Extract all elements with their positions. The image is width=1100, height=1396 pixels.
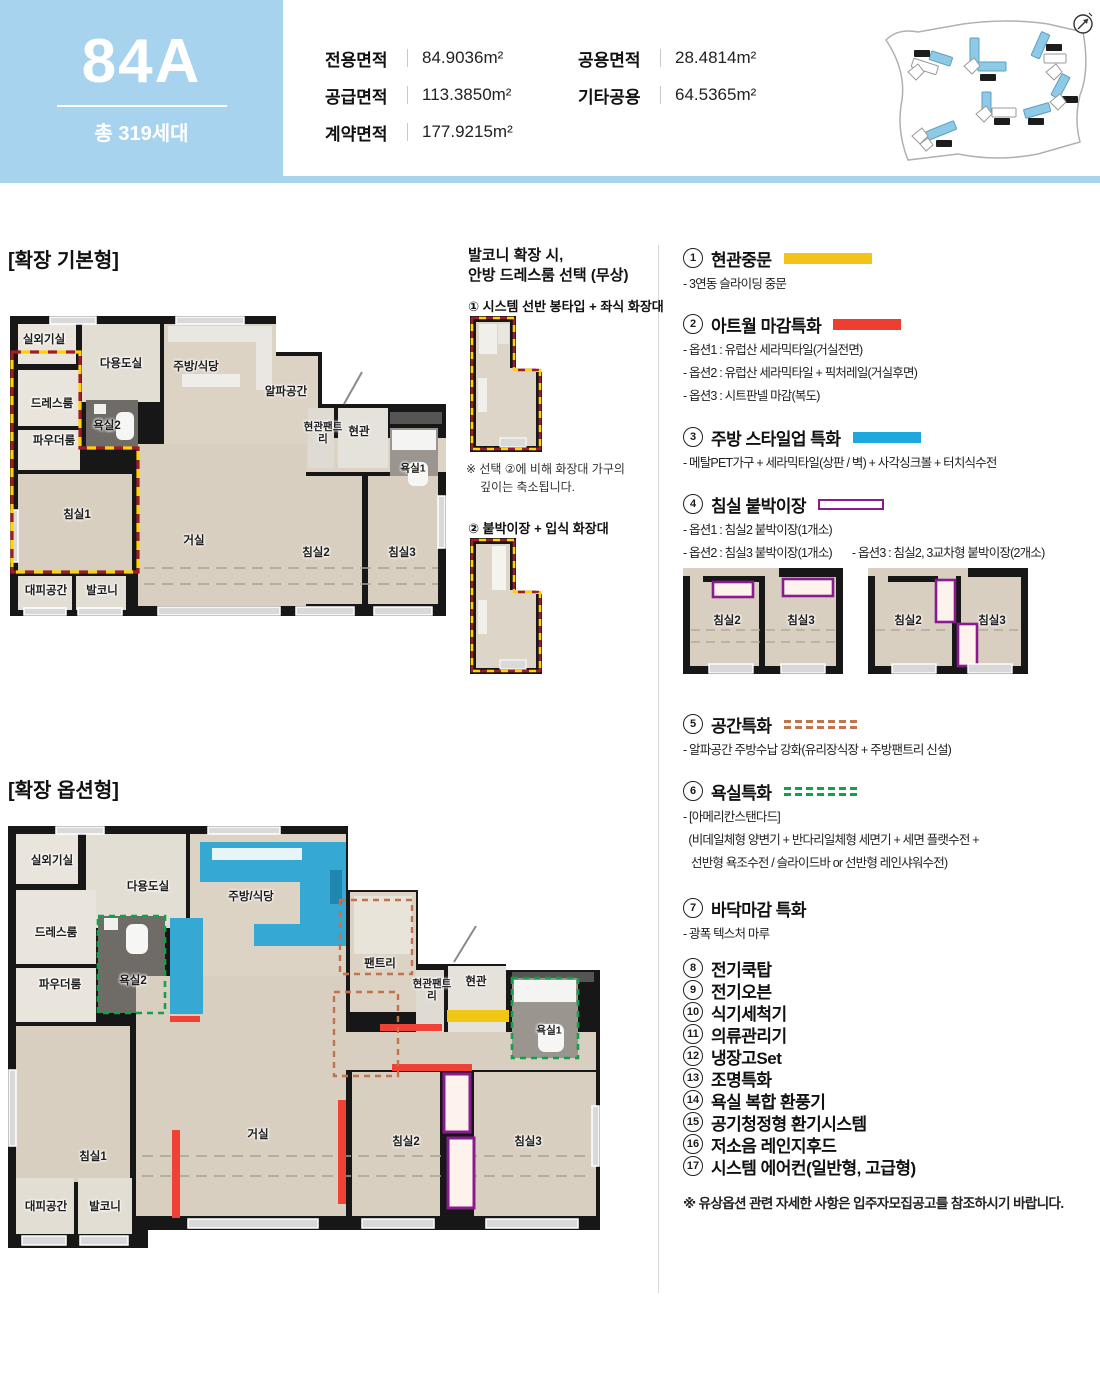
room-label: 주방/식당 — [173, 358, 219, 374]
room-label: 팬트리 — [364, 955, 396, 971]
room-label: 침실2 — [894, 612, 922, 628]
area-label: 기타공용 — [578, 83, 656, 108]
room-label: 거실 — [247, 1126, 268, 1142]
area-row: 공용면적 28.4814m² — [578, 47, 756, 69]
feature-item-head: 9전기오븐 — [683, 978, 772, 1002]
dressroom-choice-title-line2: 안방 드레스룸 선택 (무상) — [468, 266, 629, 286]
area-value: 64.5365m² — [675, 85, 756, 105]
feature-item-5: 5공간특화- 알파공간 주방수납 강화(유리장식장 + 주방팬트리 신설) — [683, 712, 951, 762]
legend-swatch-purple-outline — [818, 499, 884, 510]
feature-title: 바닥마감 특화 — [711, 896, 806, 921]
wardrobe-diagram-option3: 침실2 침실3 — [868, 568, 1028, 674]
area-row: 전용면적 84.9036m² — [325, 47, 503, 69]
feature-detail-text: - 옵션2 : 유럽산 세라믹타일 + 픽처레일(거실후면) — [683, 362, 917, 385]
feature-detail-text: - 옵션1 : 유럽산 세라믹타일(거실전면) — [683, 339, 862, 362]
room-label: 욕실1 — [400, 461, 425, 476]
room-label: 발코니 — [89, 1198, 121, 1214]
feature-detail-row: - 옵션1 : 침실2 붙박이장(1개소) — [683, 519, 1044, 542]
feature-item-head: 5공간특화 — [683, 712, 951, 736]
floor-plan-option-graphic — [8, 826, 600, 1248]
feature-item-head: 10식기세척기 — [683, 1000, 787, 1024]
feature-detail-row: - 3연동 슬라이딩 중문 — [683, 273, 872, 296]
feature-title: 침실 붙박이장 — [711, 492, 806, 517]
dressroom-note: ※ 선택 ②에 비해 화장대 가구의 깊이는 축소됩니다. — [466, 460, 625, 496]
dressroom-choice-title-line1: 발코니 확장 시, — [468, 246, 629, 266]
feature-number-badge: 11 — [683, 1024, 703, 1044]
room-label: 파우더룸 — [39, 976, 81, 992]
room-label: 욕실1 — [536, 1023, 561, 1038]
feature-detail-row: - 광폭 텍스처 마루 — [683, 923, 806, 946]
feature-item-head: 3주방 스타일업 특화 — [683, 425, 997, 449]
legend-swatch-yellow — [784, 253, 872, 264]
total-units: 총 319세대 — [94, 117, 188, 146]
area-value: 177.9215m² — [422, 122, 513, 142]
feature-item-head: 4침실 붙박이장 — [683, 492, 1044, 516]
unit-type-box: 84A 총 319세대 — [0, 0, 283, 176]
feature-item-1: 1현관중문- 3연동 슬라이딩 중문 — [683, 246, 872, 296]
floor-plan-option: 실외기실 다용도실 주방/식당 팬트리 드레스룸 욕실2 파우더룸 현관팬트리 … — [8, 826, 600, 1248]
area-row: 기타공용 64.5365m² — [578, 84, 756, 106]
plan-option-title: [확장 옵션형] — [8, 774, 119, 803]
room-label: 현관 — [465, 973, 486, 989]
area-label: 전용면적 — [325, 46, 403, 71]
room-label: 다용도실 — [127, 878, 169, 894]
feature-item-7: 7바닥마감 특화- 광폭 텍스처 마루 — [683, 896, 806, 946]
room-label: 침실2 — [392, 1133, 420, 1149]
room-label: 대피공간 — [25, 582, 67, 598]
feature-number-badge: 3 — [683, 427, 703, 447]
feature-number-badge: 9 — [683, 980, 703, 1000]
feature-detail-row: - 옵션2 : 침실3 붙박이장(1개소)- 옵션3 : 침실2, 3교차형 붙… — [683, 542, 1044, 565]
feature-detail-row: 선반형 욕조수전 / 슬라이드바 or 선반형 레인샤워수전) — [683, 852, 979, 875]
feature-number-badge: 1 — [683, 248, 703, 268]
header-divider-strip — [0, 176, 1100, 183]
feature-detail-text: - 알파공간 주방수납 강화(유리장식장 + 주방팬트리 신설) — [683, 739, 951, 762]
feature-title: 시스템 에어컨(일반형, 고급형) — [711, 1154, 916, 1179]
room-label: 파우더룸 — [33, 432, 75, 448]
feature-detail-row: - 옵션2 : 유럽산 세라믹타일 + 픽처레일(거실후면) — [683, 362, 917, 385]
room-label: 침실1 — [79, 1148, 107, 1164]
room-label: 드레스룸 — [31, 395, 73, 411]
area-label: 공용면적 — [578, 46, 656, 71]
feature-item-head: 16저소음 레인지후드 — [683, 1132, 836, 1156]
feature-detail-text: - 옵션3 : 침실2, 3교차형 붙박이장(2개소) — [852, 542, 1045, 565]
divider — [660, 86, 661, 104]
area-value: 28.4814m² — [675, 48, 756, 68]
room-label: 침실3 — [514, 1133, 542, 1149]
room-label: 실외기실 — [31, 852, 73, 868]
legend-swatch-green-dash — [784, 787, 858, 796]
room-label: 대피공간 — [25, 1198, 67, 1214]
entrance-door-highlight — [447, 1010, 509, 1022]
feature-number-badge: 5 — [683, 714, 703, 734]
room-label: 드레스룸 — [35, 924, 77, 940]
area-label: 공급면적 — [325, 83, 403, 108]
compass-icon — [1074, 13, 1092, 33]
feature-item-head: 2아트월 마감특화 — [683, 312, 917, 336]
feature-item-head: 11의류관리기 — [683, 1022, 787, 1046]
feature-detail-row: - 옵션1 : 유럽산 세라믹타일(거실전면) — [683, 339, 917, 362]
room-label: 현관팬트리 — [411, 978, 453, 1002]
room-label: 다용도실 — [100, 355, 142, 371]
area-value: 84.9036m² — [422, 48, 503, 68]
feature-detail-text: - 옵션1 : 침실2 붙박이장(1개소) — [683, 519, 832, 542]
feature-number-badge: 14 — [683, 1090, 703, 1110]
feature-item-17: 17시스템 에어컨(일반형, 고급형) — [683, 1154, 916, 1181]
feature-title: 현관중문 — [711, 246, 772, 271]
room-label: 현관 — [348, 423, 369, 439]
room-label: 실외기실 — [23, 331, 65, 347]
room-label: 욕실2 — [93, 417, 121, 433]
feature-detail-text: (비데일체형 양변기 + 반다리일체형 세면기 + 세면 플랫수전 + — [683, 829, 979, 852]
page: 84A 총 319세대 전용면적 84.9036m² 공급면적 113.3850… — [0, 0, 1100, 1396]
area-label: 계약면적 — [325, 120, 403, 145]
feature-detail-row: (비데일체형 양변기 + 반다리일체형 세면기 + 세면 플랫수전 + — [683, 829, 979, 852]
feature-detail-text: - 광폭 텍스처 마루 — [683, 923, 769, 946]
room-label: 침실3 — [978, 612, 1006, 628]
feature-item-head: 14욕실 복합 환풍기 — [683, 1088, 825, 1112]
feature-title: 공간특화 — [711, 712, 772, 737]
room-label: 발코니 — [86, 582, 118, 598]
room-label: 침실1 — [63, 506, 91, 522]
feature-title: 욕실특화 — [711, 779, 772, 804]
feature-detail-row: - [아메리칸스탠다드] — [683, 806, 979, 829]
feature-number-badge: 7 — [683, 898, 703, 918]
feature-number-badge: 8 — [683, 958, 703, 978]
feature-item-3: 3주방 스타일업 특화- 메탈PET가구 + 세라믹타일(상판 / 벽) + 사… — [683, 425, 997, 475]
feature-item-head: 6욕실특화 — [683, 779, 979, 803]
area-row: 계약면적 177.9215m² — [325, 121, 513, 143]
legend-swatch-blue — [853, 432, 921, 443]
feature-number-badge: 17 — [683, 1156, 703, 1176]
area-value: 113.3850m² — [422, 85, 511, 105]
feature-number-badge: 15 — [683, 1112, 703, 1132]
site-map — [878, 10, 1096, 168]
floor-plan-basic: 실외기실 다용도실 주방/식당 알파공간 드레스룸 욕실2 파우더룸 현관팬트리… — [10, 316, 446, 616]
floor-plan-basic-graphic — [10, 316, 446, 616]
feature-detail-text: - 옵션3 : 시트판넬 마감(복도) — [683, 385, 820, 408]
feature-detail-text: 선반형 욕조수전 / 슬라이드바 or 선반형 레인샤워수전) — [683, 852, 947, 875]
feature-detail-text: - 메탈PET가구 + 세라믹타일(상판 / 벽) + 사각싱크볼 + 터치식수… — [683, 452, 997, 475]
room-label: 거실 — [183, 532, 204, 548]
plan-basic-title: [확장 기본형] — [8, 244, 119, 273]
feature-detail-text: - 3연동 슬라이딩 중문 — [683, 273, 786, 296]
feature-number-badge: 2 — [683, 314, 703, 334]
room-label: 침실3 — [787, 612, 815, 628]
feature-item-head: 12냉장고Set — [683, 1044, 781, 1068]
legend-swatch-red — [833, 319, 901, 330]
feature-number-badge: 6 — [683, 781, 703, 801]
room-label: 알파공간 — [265, 383, 307, 399]
feature-number-badge: 13 — [683, 1068, 703, 1088]
feature-number-badge: 10 — [683, 1002, 703, 1022]
feature-detail-row: - 알파공간 주방수납 강화(유리장식장 + 주방팬트리 신설) — [683, 739, 951, 762]
room-label: 침실3 — [388, 544, 416, 560]
feature-item-head: 1현관중문 — [683, 246, 872, 270]
feature-item-head: 15공기청정형 환기시스템 — [683, 1110, 867, 1134]
column-divider — [658, 245, 659, 1293]
area-row: 공급면적 113.3850m² — [325, 84, 511, 106]
dressroom-note-line1: ※ 선택 ②에 비해 화장대 가구의 — [466, 460, 625, 478]
feature-title: 아트월 마감특화 — [711, 312, 821, 337]
feature-detail-row: - 옵션3 : 시트판넬 마감(복도) — [683, 385, 917, 408]
feature-item-head: 7바닥마감 특화 — [683, 896, 806, 920]
divider — [407, 86, 408, 104]
dressroom-note-line2: 깊이는 축소됩니다. — [466, 478, 625, 496]
dressroom-option2-label: ② 붙박이장 + 입식 화장대 — [468, 518, 609, 537]
divider — [407, 49, 408, 67]
wardrobe-highlight — [444, 1074, 474, 1208]
feature-detail-text: - [아메리칸스탠다드] — [683, 806, 780, 829]
feature-item-4: 4침실 붙박이장- 옵션1 : 침실2 붙박이장(1개소)- 옵션2 : 침실3… — [683, 492, 1044, 565]
room-label: 주방/식당 — [228, 888, 274, 904]
divider — [57, 105, 227, 107]
feature-number-badge: 4 — [683, 494, 703, 514]
feature-item-6: 6욕실특화- [아메리칸스탠다드] (비데일체형 양변기 + 반다리일체형 세면… — [683, 779, 979, 875]
dressroom-option1-label: ① 시스템 선반 봉타입 + 좌식 화장대 — [468, 296, 664, 315]
feature-detail-text: - 옵션2 : 침실3 붙박이장(1개소) — [683, 542, 832, 565]
feature-item-head: 13조명특화 — [683, 1066, 772, 1090]
divider — [660, 49, 661, 67]
legend-swatch-orange-dash — [784, 720, 858, 729]
dressroom-choice-title: 발코니 확장 시, 안방 드레스룸 선택 (무상) — [468, 246, 629, 287]
feature-detail-row: - 메탈PET가구 + 세라믹타일(상판 / 벽) + 사각싱크볼 + 터치식수… — [683, 452, 997, 475]
feature-item-head: 17시스템 에어컨(일반형, 고급형) — [683, 1154, 916, 1178]
room-label: 침실2 — [302, 544, 330, 560]
feature-title: 주방 스타일업 특화 — [711, 425, 841, 450]
paid-option-footnote: ※ 유상옵션 관련 자세한 사항은 입주자모집공고를 참조하시기 바랍니다. — [683, 1192, 1064, 1212]
feature-number-badge: 12 — [683, 1046, 703, 1066]
wardrobe-diagram-option12: 침실2 침실3 — [683, 568, 843, 674]
room-label: 욕실2 — [119, 972, 147, 988]
site-map-graphic — [878, 10, 1096, 168]
unit-type-title: 84A — [82, 31, 202, 93]
room-label: 현관팬트리 — [302, 421, 344, 445]
dressroom-mini-plan-2 — [470, 538, 552, 674]
dressroom-mini-plan-1 — [470, 316, 552, 452]
feature-item-2: 2아트월 마감특화- 옵션1 : 유럽산 세라믹타일(거실전면)- 옵션2 : … — [683, 312, 917, 408]
divider — [407, 123, 408, 141]
feature-item-head: 8전기쿡탑 — [683, 956, 772, 980]
feature-number-badge: 16 — [683, 1134, 703, 1154]
room-label: 침실2 — [713, 612, 741, 628]
